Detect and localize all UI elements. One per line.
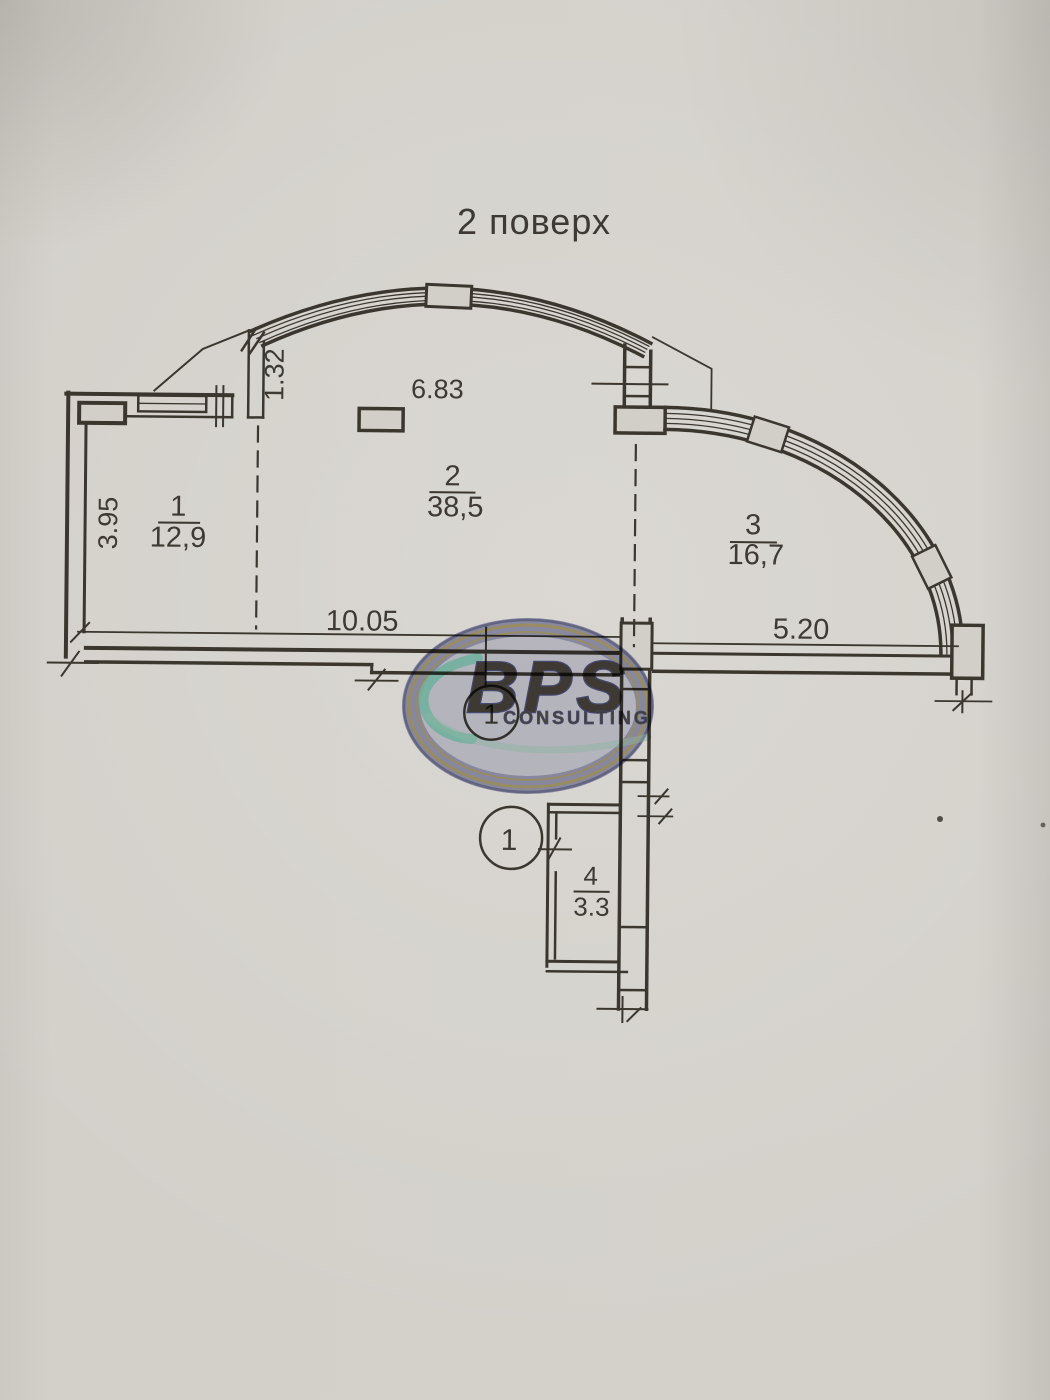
top-arc-glazing: [242, 283, 652, 358]
room4-top-outer: [548, 804, 620, 805]
room-2-area: 38,5: [427, 491, 484, 524]
arc-mullion: [747, 417, 789, 453]
bottom-wall-lower: [86, 662, 372, 665]
dim-bottom-left: 10.05: [326, 605, 399, 638]
room-4-number: 4: [583, 861, 598, 891]
left-outer-wall: [66, 393, 69, 657]
jamb-wall-a: [248, 330, 249, 417]
room4-left-inner: [555, 872, 556, 958]
left-inner-wall: [84, 423, 86, 632]
room4-left-outer: [547, 804, 549, 966]
room-4-area: 3.3: [573, 892, 609, 922]
room-2-number: 2: [444, 460, 460, 492]
junction-wall: [624, 345, 625, 407]
window-midline: [138, 403, 206, 404]
room-1-walls: [64, 385, 233, 659]
wall-pier: [79, 403, 125, 423]
dim-top-width: 6.83: [411, 374, 464, 405]
gable-diagonal: [154, 329, 249, 391]
room4-bottom-inner: [547, 971, 627, 972]
bottom-wall-lower: [654, 671, 952, 674]
room4-bottom-outer: [547, 961, 619, 962]
watermark-subtitle-text: CONSULTING: [503, 708, 651, 728]
dashed-partition-room3: [634, 445, 636, 646]
room4-top-inner: [548, 812, 620, 813]
junction-pier: [615, 407, 665, 433]
dim-bottom-right: 5.20: [773, 613, 830, 646]
right-arc-glazing: [662, 407, 994, 712]
room-3-number: 3: [745, 509, 761, 541]
detail-marker-2: 1: [480, 807, 543, 870]
bottom-wall-upper: [654, 653, 952, 656]
paper-speck: [937, 816, 943, 822]
dim-left-height: 3.95: [93, 497, 124, 550]
marker-label: 1: [501, 824, 518, 857]
scanned-floor-plan: 2 поверх: [0, 0, 1050, 1400]
page-title: 2 поверх: [457, 201, 611, 242]
junction-tick: [592, 384, 667, 385]
paper-speck: [1041, 823, 1046, 828]
column: [359, 408, 403, 430]
dashed-partition-room1: [256, 426, 258, 628]
arc-end-pier: [952, 625, 984, 678]
room-1-area: 12,9: [150, 521, 207, 554]
room-1-number: 1: [170, 491, 186, 523]
junction-wall: [650, 351, 651, 407]
arc-peak-mullion: [426, 284, 472, 308]
gable-diagonal-right: [652, 337, 712, 409]
room-3-area: 16,7: [727, 539, 784, 572]
watermark-logo: BPS CONSULTING: [402, 618, 654, 794]
dim-arc-offset: 1.32: [259, 348, 290, 401]
